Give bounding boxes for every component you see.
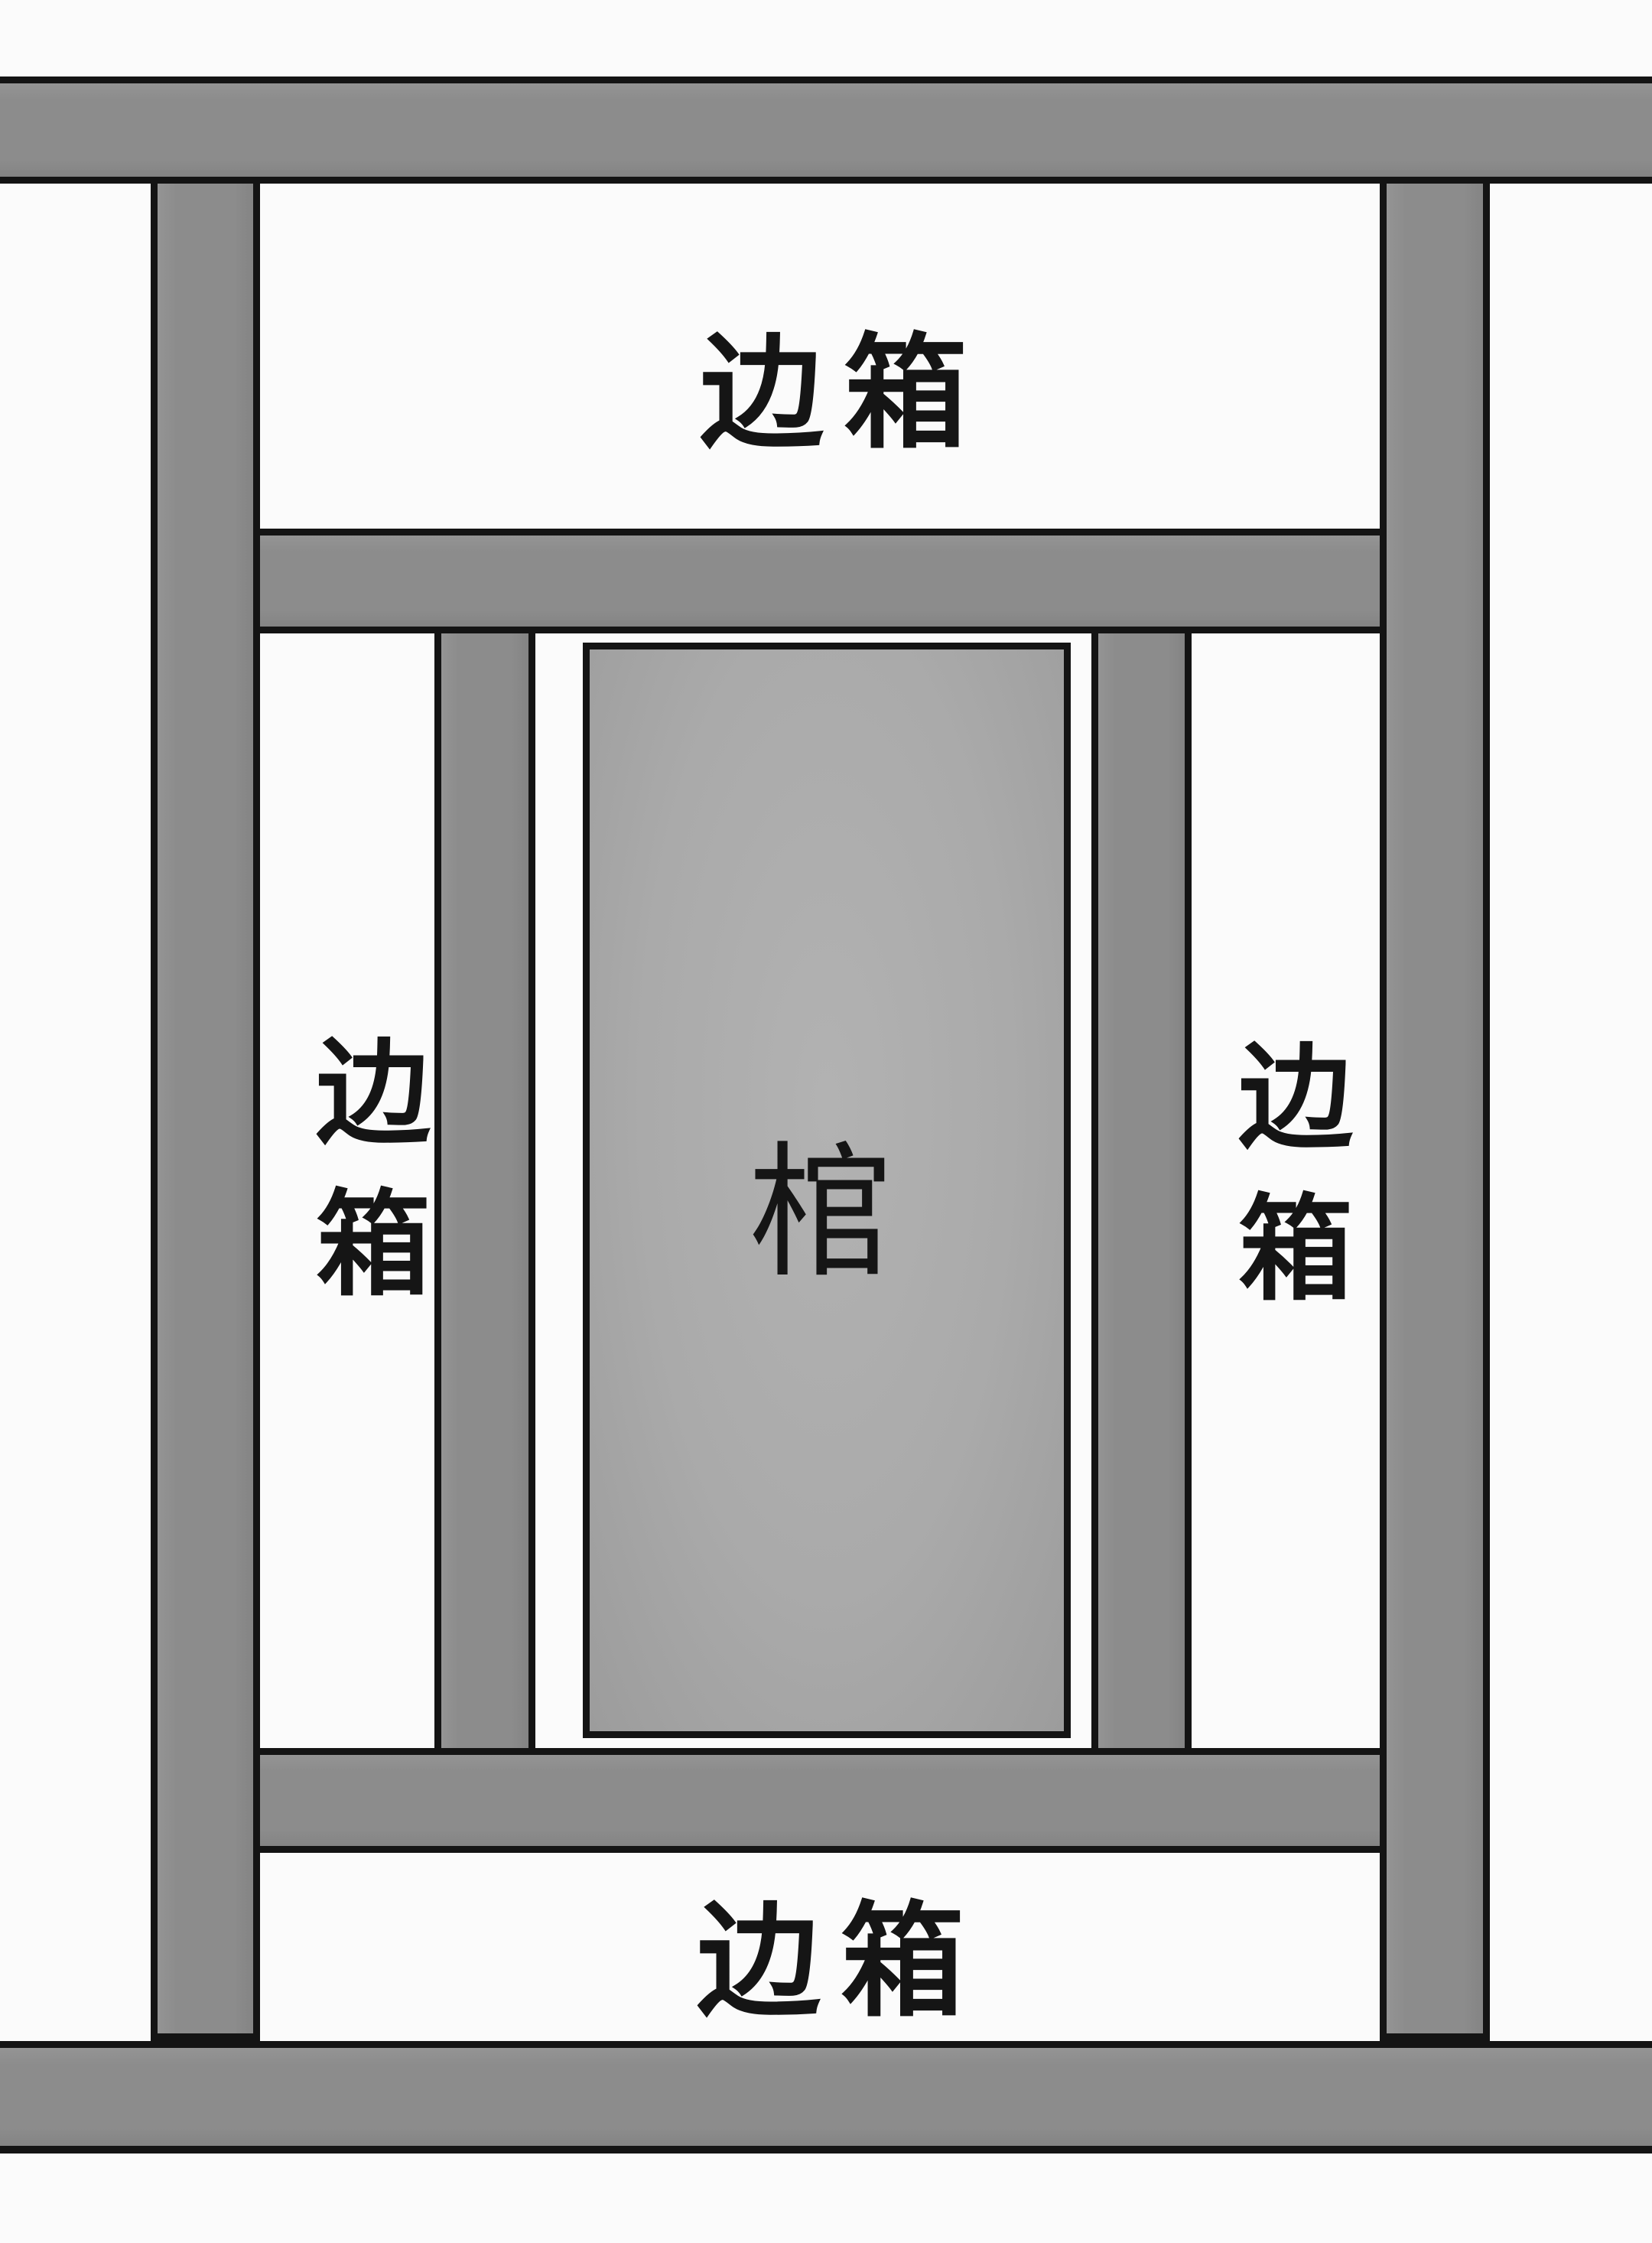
- right-frame-rail: [1380, 184, 1490, 2041]
- burial-chamber-diagram: 棺 边箱 边箱 边箱 边箱: [0, 0, 1652, 2243]
- top-side-box-label: 边箱: [274, 210, 1393, 555]
- bottom-frame-rail: [0, 2041, 1652, 2153]
- left-side-box-label: 边箱: [276, 626, 450, 1740]
- top-frame-rail: [0, 77, 1652, 184]
- inner-right-post: [1091, 633, 1192, 1748]
- bottom-side-box-label: 边箱: [271, 1856, 1390, 2044]
- coffin-label: 棺: [748, 1095, 893, 1305]
- right-side-box-label: 边箱: [1192, 630, 1380, 1745]
- lower-inner-crossbar: [260, 1748, 1380, 1853]
- coffin-rectangle: 棺: [583, 643, 1071, 1738]
- left-frame-rail: [151, 184, 260, 2041]
